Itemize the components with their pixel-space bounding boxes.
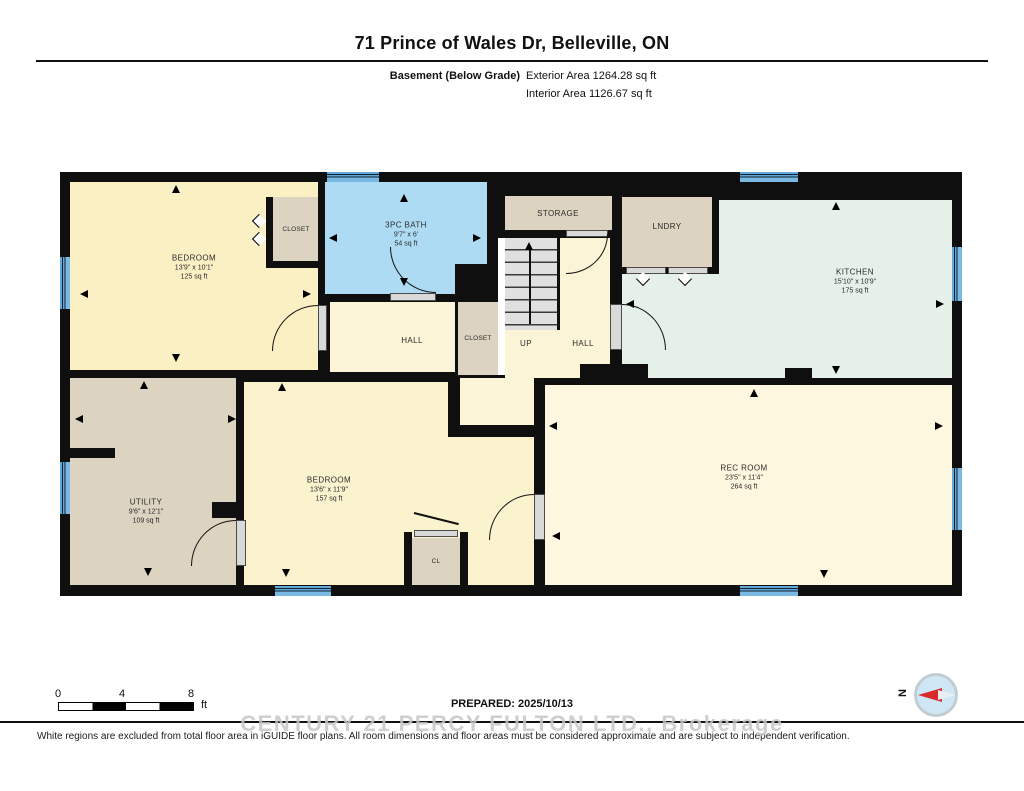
dimension-arrow-icon [80, 290, 88, 298]
room-label-closet-2: CLOSET [464, 335, 491, 343]
room-label-laundry: LNDRY [653, 222, 682, 232]
room-area: 125 sq ft [172, 273, 216, 282]
dimension-arrow-icon [832, 202, 840, 210]
brokerage-watermark: CENTURY 21 PERCY FULTON LTD., Brokerage [0, 711, 1024, 737]
door-leaf [626, 267, 666, 274]
room-label-closet-1: CLOSET [282, 226, 309, 234]
room-name: REC ROOM [720, 464, 767, 474]
room-name: 3PC BATH [385, 221, 427, 231]
compass-south-needle-icon [938, 690, 956, 700]
room-label-rec-room: REC ROOM 23'5" x 11'4" 264 sq ft [720, 464, 767, 493]
room-label-up: UP [520, 339, 532, 349]
wall-segment [785, 368, 812, 386]
door-leaf [414, 530, 458, 537]
dimension-arrow-icon [278, 383, 286, 391]
wall-segment [266, 261, 318, 268]
window-icon [327, 172, 379, 182]
door-leaf [534, 494, 545, 540]
dimension-arrow-icon [549, 422, 557, 430]
room-area: 157 sq ft [307, 495, 351, 504]
window-icon [740, 586, 798, 596]
door-leaf [610, 304, 622, 350]
dimension-arrow-icon [473, 234, 481, 242]
room-label-hall-1: HALL [401, 336, 423, 346]
room-dims: 9'7" x 6' [385, 231, 427, 240]
room-name: CLOSET [464, 335, 491, 343]
room-hall-2-lower [505, 330, 560, 378]
room-name: UTILITY [129, 498, 164, 508]
interior-area: Interior Area 1126.67 sq ft [526, 88, 652, 100]
room-dims: 15'10" x 10'9" [834, 278, 876, 287]
dimension-arrow-icon [329, 234, 337, 242]
room-label-bath: 3PC BATH 9'7" x 6' 54 sq ft [385, 221, 427, 250]
room-label-hall-2: HALL [572, 339, 594, 349]
dimension-arrow-icon [144, 568, 152, 576]
stairs-direction-line [529, 250, 531, 324]
wall-segment [455, 264, 487, 294]
room-label-closet-3: CL [432, 558, 441, 566]
window-icon [952, 247, 962, 301]
room-dims: 23'5" x 11'4" [720, 474, 767, 483]
dimension-arrow-icon [400, 278, 408, 286]
dimension-arrow-icon [750, 389, 758, 397]
room-area: 109 sq ft [129, 517, 164, 526]
dimension-arrow-icon [75, 415, 83, 423]
room-name: LNDRY [653, 222, 682, 232]
prepared-date: PREPARED: 2025/10/13 [0, 698, 1024, 710]
window-icon [60, 257, 70, 309]
header-divider [36, 60, 988, 62]
room-name: STORAGE [537, 209, 579, 219]
floor-label: Basement (Below Grade) [230, 70, 520, 82]
room-name: HALL [572, 339, 594, 349]
room-area: 54 sq ft [385, 240, 427, 249]
dimension-arrow-icon [552, 532, 560, 540]
room-area: 264 sq ft [720, 483, 767, 492]
wall-segment [712, 197, 719, 274]
wall-segment [580, 364, 648, 378]
hall-extension [460, 378, 534, 425]
window-icon [952, 468, 962, 530]
dimension-arrow-icon [400, 194, 408, 202]
floor-plan: BEDROOM 13'9" x 10'1" 125 sq ft CLOSET 3… [60, 172, 962, 596]
wall-segment [212, 502, 246, 518]
window-icon [60, 462, 70, 514]
window-icon [740, 172, 798, 182]
room-name: HALL [401, 336, 423, 346]
room-label-utility: UTILITY 9'6" x 12'1" 109 sq ft [129, 498, 164, 527]
floor-plan-page: 71 Prince of Wales Dr, Belleville, ON Ba… [0, 0, 1024, 791]
dimension-arrow-icon [832, 366, 840, 374]
room-label-storage: STORAGE [537, 209, 579, 219]
door-leaf [668, 267, 708, 274]
door-leaf [236, 520, 246, 566]
wall-segment [266, 197, 273, 268]
compass-north-label: N [897, 689, 909, 697]
room-dims: 13'6" x 11'9" [307, 486, 351, 495]
stairs-up-arrow-icon [525, 242, 533, 250]
exterior-area: Exterior Area 1264.28 sq ft [526, 70, 656, 82]
room-name: BEDROOM [307, 476, 351, 486]
dimension-arrow-icon [172, 185, 180, 193]
room-label-bedroom-1: BEDROOM 13'9" x 10'1" 125 sq ft [172, 254, 216, 283]
room-label-bedroom-2: BEDROOM 13'6" x 11'9" 157 sq ft [307, 476, 351, 505]
door-leaf [318, 305, 327, 351]
dimension-arrow-icon [820, 570, 828, 578]
page-title: 71 Prince of Wales Dr, Belleville, ON [0, 33, 1024, 54]
room-hall-1 [330, 302, 455, 372]
dimension-arrow-icon [172, 354, 180, 362]
dimension-arrow-icon [228, 415, 236, 423]
wall-segment [460, 532, 468, 585]
room-area: 175 sq ft [834, 287, 876, 296]
staircase [505, 238, 557, 330]
dimension-arrow-icon [935, 422, 943, 430]
dimension-arrow-icon [140, 381, 148, 389]
wall-segment [70, 448, 115, 458]
dimension-arrow-icon [303, 290, 311, 298]
wall-segment [456, 425, 546, 437]
dimension-arrow-icon [282, 569, 290, 577]
wall-segment [404, 532, 412, 585]
room-name: UP [520, 339, 532, 349]
room-name: CL [432, 558, 441, 566]
room-name: KITCHEN [834, 268, 876, 278]
room-name: BEDROOM [172, 254, 216, 264]
window-icon [275, 586, 331, 596]
room-label-kitchen: KITCHEN 15'10" x 10'9" 175 sq ft [834, 268, 876, 297]
dimension-arrow-icon [936, 300, 944, 308]
room-dims: 13'9" x 10'1" [172, 264, 216, 273]
room-name: CLOSET [282, 226, 309, 234]
dimension-arrow-icon [626, 300, 634, 308]
door-leaf [390, 293, 436, 301]
room-dims: 9'6" x 12'1" [129, 508, 164, 517]
